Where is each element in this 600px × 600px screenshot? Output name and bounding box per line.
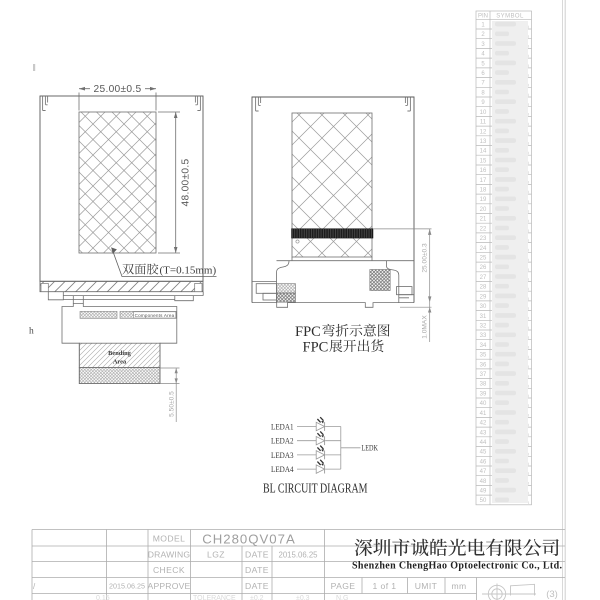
svg-text:39: 39 — [480, 391, 487, 397]
svg-text:MODEL: MODEL — [153, 534, 186, 544]
svg-text:48.00±0.5: 48.00±0.5 — [181, 158, 192, 206]
svg-text:43: 43 — [480, 430, 487, 436]
svg-text:22: 22 — [480, 226, 487, 232]
svg-text:35: 35 — [480, 353, 487, 359]
svg-text:FPC: FPC — [295, 324, 321, 340]
svg-text:23: 23 — [480, 236, 487, 242]
svg-text:19: 19 — [480, 197, 487, 203]
svg-text:33: 33 — [480, 333, 487, 339]
svg-text:10: 10 — [480, 110, 487, 116]
svg-text:Components Area: Components Area — [135, 313, 175, 318]
svg-text:49: 49 — [480, 489, 487, 495]
svg-text:(T=0.15mm): (T=0.15mm) — [160, 265, 217, 277]
svg-text:SYMBOL: SYMBOL — [496, 13, 524, 19]
svg-text:11: 11 — [480, 120, 487, 126]
svg-text:h: h — [29, 327, 34, 337]
svg-text:Bending: Bending — [108, 350, 132, 357]
svg-text:TOLERANCE: TOLERANCE — [193, 595, 236, 600]
svg-text:2015.06.25: 2015.06.25 — [109, 582, 145, 591]
svg-text:(3): (3) — [546, 589, 558, 600]
svg-text:45: 45 — [480, 450, 487, 456]
svg-text:24: 24 — [480, 246, 487, 252]
svg-text:FPC: FPC — [303, 340, 329, 356]
svg-text:CHECK: CHECK — [153, 565, 185, 575]
svg-text:UMIT: UMIT — [415, 581, 438, 591]
svg-text:DATE: DATE — [245, 550, 269, 560]
svg-text:40: 40 — [480, 401, 487, 407]
svg-text:34: 34 — [480, 343, 487, 349]
svg-text:18: 18 — [480, 188, 487, 194]
svg-text:5.50±0.5: 5.50±0.5 — [168, 391, 175, 417]
svg-text:16: 16 — [480, 168, 487, 174]
svg-text:25: 25 — [480, 256, 487, 262]
svg-text:12: 12 — [480, 129, 487, 135]
svg-text:DATE: DATE — [245, 565, 269, 575]
svg-text:32: 32 — [480, 324, 487, 330]
svg-text:DATE: DATE — [245, 581, 269, 591]
svg-text:26: 26 — [480, 265, 487, 271]
svg-text:25.00±0.3: 25.00±0.3 — [421, 243, 428, 273]
svg-text:LEDA2: LEDA2 — [271, 437, 294, 446]
svg-text:LEDA1: LEDA1 — [271, 423, 294, 432]
svg-text:13: 13 — [480, 139, 487, 145]
svg-text:36: 36 — [480, 362, 487, 368]
svg-text:15: 15 — [480, 158, 487, 164]
svg-text:±0.2: ±0.2 — [250, 595, 264, 600]
svg-text:27: 27 — [480, 275, 487, 281]
svg-text:31: 31 — [480, 314, 487, 320]
svg-text:LEDA3: LEDA3 — [271, 451, 294, 460]
svg-text:BL CIRCUIT DIAGRAM: BL CIRCUIT DIAGRAM — [263, 481, 368, 496]
svg-text:N.G: N.G — [336, 595, 348, 600]
svg-text:42: 42 — [480, 421, 487, 427]
svg-text:DRAWING: DRAWING — [148, 550, 191, 560]
svg-text:14: 14 — [480, 149, 487, 155]
svg-text:LGZ: LGZ — [207, 550, 225, 560]
svg-text:44: 44 — [480, 440, 487, 446]
svg-text:APPROVE: APPROVE — [148, 581, 191, 591]
svg-text:PAGE: PAGE — [331, 581, 356, 591]
svg-text:30: 30 — [480, 304, 487, 310]
svg-text:46: 46 — [480, 459, 487, 465]
svg-text:47: 47 — [480, 469, 487, 475]
svg-text:21: 21 — [480, 217, 487, 223]
svg-text:LEDK: LEDK — [362, 444, 379, 453]
svg-text:PIN: PIN — [478, 13, 488, 19]
svg-text:1 of 1: 1 of 1 — [373, 581, 397, 591]
svg-text:0.15: 0.15 — [96, 595, 110, 600]
svg-text:41: 41 — [480, 411, 487, 417]
svg-text:48: 48 — [480, 479, 487, 485]
svg-text:LEDA4: LEDA4 — [271, 465, 294, 474]
svg-text:mm: mm — [451, 581, 466, 591]
svg-text:1.0MAX: 1.0MAX — [421, 315, 428, 339]
svg-text:25.00±0.5: 25.00±0.5 — [94, 84, 142, 95]
svg-text:28: 28 — [480, 285, 487, 291]
svg-text:CH280QV07A: CH280QV07A — [202, 532, 296, 547]
svg-text:2015.06.25: 2015.06.25 — [278, 551, 318, 560]
svg-text:17: 17 — [480, 178, 487, 184]
svg-text:29: 29 — [480, 294, 487, 300]
svg-text:Area: Area — [113, 358, 127, 365]
svg-text:38: 38 — [480, 382, 487, 388]
svg-text:50: 50 — [480, 498, 487, 504]
svg-text:Shenzhen ChengHao Optoelectron: Shenzhen ChengHao Optoelectronic Co., Lt… — [352, 561, 563, 572]
svg-text:±0.3: ±0.3 — [296, 595, 310, 600]
svg-text:20: 20 — [480, 207, 487, 213]
svg-text:37: 37 — [480, 372, 487, 378]
